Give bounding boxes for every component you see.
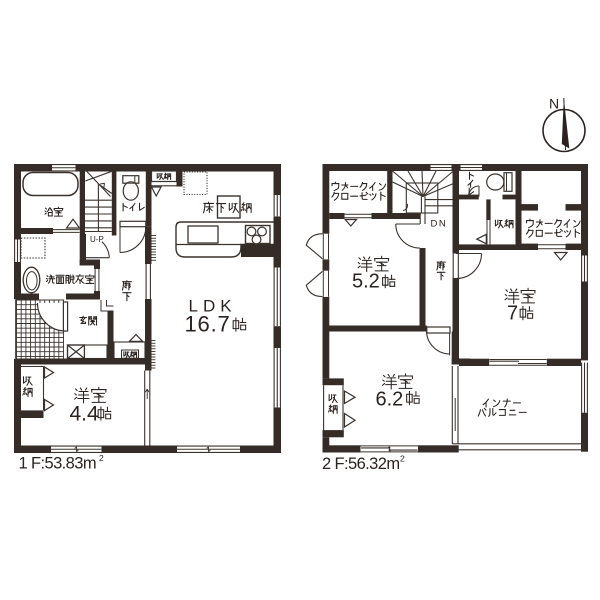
- svg-text:6.2: 6.2: [376, 389, 404, 411]
- svg-text:2: 2: [400, 454, 405, 464]
- svg-text:DN: DN: [431, 219, 448, 230]
- svg-text:1 F:53.83m: 1 F:53.83m: [19, 455, 96, 473]
- svg-text:U-P: U-P: [90, 235, 104, 244]
- svg-text:4.4: 4.4: [70, 403, 100, 426]
- svg-text:16.7: 16.7: [185, 312, 231, 337]
- svg-text:7: 7: [507, 303, 518, 325]
- svg-text:5.2: 5.2: [352, 271, 380, 293]
- svg-text:2 F:56.32m: 2 F:56.32m: [322, 455, 399, 473]
- svg-text:2: 2: [99, 453, 104, 463]
- svg-text:N: N: [549, 96, 559, 112]
